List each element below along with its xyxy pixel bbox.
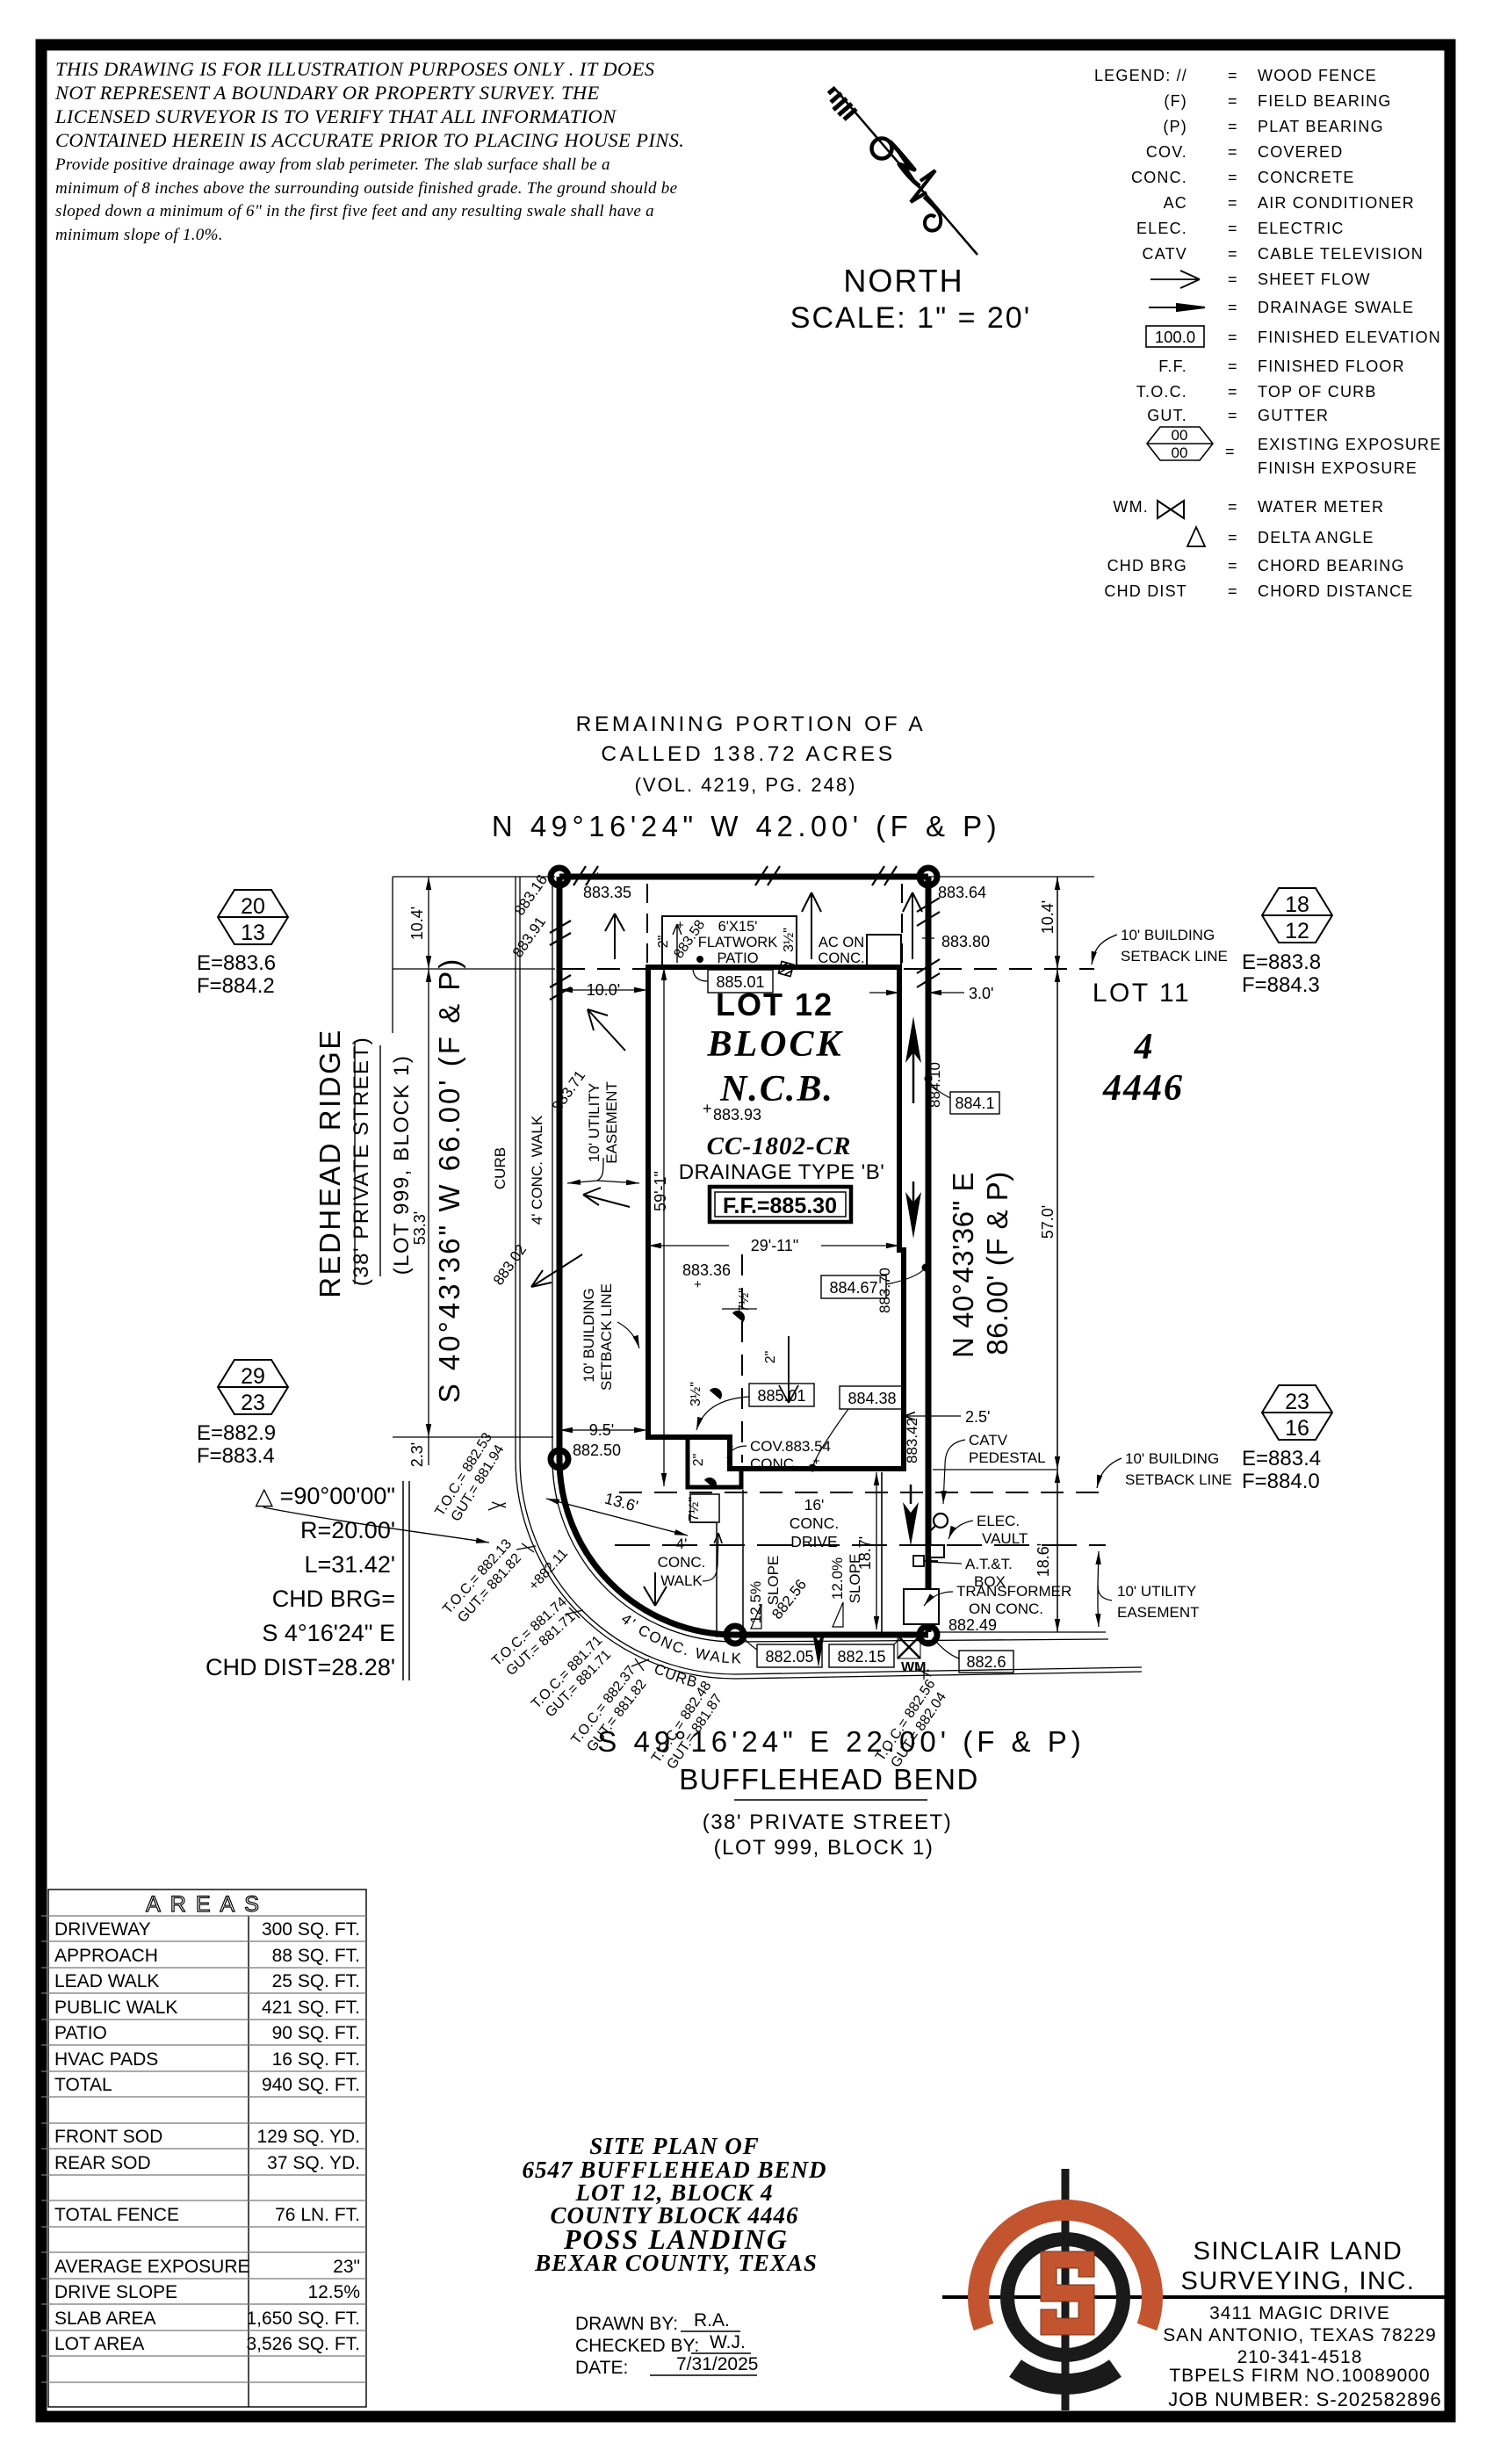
svg-text:DELTA ANGLE: DELTA ANGLE bbox=[1258, 529, 1374, 546]
svg-text:sloped down a minimum of 6" in: sloped down a minimum of 6" in the first… bbox=[55, 202, 654, 220]
svg-text:(38' PRIVATE STREET): (38' PRIVATE STREET) bbox=[350, 1037, 373, 1286]
svg-text:DRIVE: DRIVE bbox=[790, 1533, 837, 1550]
svg-text:(LOT 999, BLOCK 1): (LOT 999, BLOCK 1) bbox=[714, 1836, 934, 1860]
svg-text:E=883.4: E=883.4 bbox=[1242, 1447, 1321, 1470]
svg-text:+882.11: +882.11 bbox=[526, 1546, 571, 1593]
svg-text:COV.: COV. bbox=[1146, 143, 1187, 161]
svg-text:ELEC.: ELEC. bbox=[1136, 220, 1187, 237]
svg-text:+: + bbox=[594, 869, 602, 884]
svg-text:△ =90°00'00": △ =90°00'00" bbox=[255, 1483, 395, 1509]
svg-text:=: = bbox=[1228, 194, 1238, 212]
svg-text:883.35: 883.35 bbox=[583, 884, 631, 901]
svg-text:+: + bbox=[694, 1277, 702, 1292]
svg-text:882.05: 882.05 bbox=[765, 1648, 813, 1666]
svg-text:CHD BRG: CHD BRG bbox=[1107, 557, 1187, 574]
svg-text:DRIVEWAY: DRIVEWAY bbox=[54, 1919, 151, 1940]
svg-text:90 SQ. FT.: 90 SQ. FT. bbox=[272, 2023, 360, 2043]
svg-text:minimum slope of 1.0%.: minimum slope of 1.0%. bbox=[55, 226, 223, 244]
svg-text:SLAB AREA: SLAB AREA bbox=[54, 2309, 156, 2329]
svg-text:23": 23" bbox=[333, 2257, 360, 2277]
svg-text:883.71: 883.71 bbox=[549, 1067, 588, 1114]
svg-text:S 49°16'24" E 22.00' (F &: S 49°16'24" E 22.00' (F & P) bbox=[597, 1725, 1085, 1758]
svg-text:FINISH EXPOSURE: FINISH EXPOSURE bbox=[1258, 459, 1417, 477]
svg-text:2": 2" bbox=[691, 1454, 706, 1467]
svg-text:WALK: WALK bbox=[660, 1572, 703, 1589]
svg-text:210-341-4518: 210-341-4518 bbox=[1237, 2347, 1363, 2367]
svg-text:882.15: 882.15 bbox=[837, 1648, 885, 1666]
svg-text:NORTH: NORTH bbox=[843, 263, 963, 299]
svg-text:57.0': 57.0' bbox=[1039, 1205, 1057, 1239]
svg-text:TBPELS FIRM NO.10089000: TBPELS FIRM NO.10089000 bbox=[1169, 2366, 1430, 2386]
svg-text:FINISHED ELEVATION: FINISHED ELEVATION bbox=[1258, 329, 1441, 346]
svg-text:884.38: 884.38 bbox=[847, 1390, 896, 1407]
svg-text:SETBACK LINE: SETBACK LINE bbox=[1121, 948, 1228, 965]
svg-text:EASEMENT: EASEMENT bbox=[1117, 1604, 1200, 1621]
svg-text:10' BUILDING: 10' BUILDING bbox=[581, 1288, 597, 1382]
svg-text:NOT REPRESENT A BOUNDARY OR PR: NOT REPRESENT A BOUNDARY OR PROPERTY SUR… bbox=[54, 82, 600, 104]
svg-text:WOOD FENCE: WOOD FENCE bbox=[1258, 67, 1377, 84]
svg-text:00: 00 bbox=[1172, 427, 1188, 444]
svg-text:SLOPE: SLOPE bbox=[847, 1554, 863, 1604]
svg-text:AVERAGE EXPOSURE: AVERAGE EXPOSURE bbox=[54, 2257, 250, 2277]
svg-text:DATE:: DATE: bbox=[575, 2358, 628, 2378]
svg-text:R.A.: R.A. bbox=[694, 2310, 730, 2330]
svg-text:CABLE TELEVISION: CABLE TELEVISION bbox=[1258, 245, 1424, 263]
svg-text:12.0%: 12.0% bbox=[829, 1557, 846, 1600]
svg-text:882.50: 882.50 bbox=[573, 1442, 621, 1459]
svg-text:F.F.: F.F. bbox=[1158, 358, 1187, 375]
svg-text:23: 23 bbox=[241, 1391, 265, 1415]
svg-text:SITE PLAN OF: SITE PLAN OF bbox=[589, 2133, 760, 2159]
svg-text:F=883.4: F=883.4 bbox=[197, 1444, 275, 1468]
svg-text:+: + bbox=[703, 1100, 712, 1117]
svg-text:PATIO: PATIO bbox=[717, 950, 758, 966]
svg-text:CALLED 138.72 ACRES: CALLED 138.72 ACRES bbox=[601, 742, 895, 766]
svg-text:53.3': 53.3' bbox=[411, 1211, 429, 1245]
svg-text:N.C.B.: N.C.B. bbox=[719, 1069, 834, 1109]
svg-text:A.T.&T.: A.T.&T. bbox=[965, 1556, 1013, 1572]
svg-text:=: = bbox=[1228, 143, 1238, 161]
svg-text:DRIVE SLOPE: DRIVE SLOPE bbox=[54, 2282, 177, 2302]
svg-text:300 SQ. FT.: 300 SQ. FT. bbox=[262, 1919, 360, 1940]
svg-text:=: = bbox=[1228, 299, 1238, 316]
svg-text:23: 23 bbox=[1285, 1390, 1309, 1414]
svg-text:REMAINING PORTION OF A: REMAINING PORTION OF A bbox=[576, 712, 927, 736]
svg-text:CHORD DISTANCE: CHORD DISTANCE bbox=[1258, 582, 1413, 600]
svg-text:883.42: 883.42 bbox=[904, 1418, 920, 1463]
svg-text:LOT 11: LOT 11 bbox=[1093, 979, 1191, 1008]
svg-text:GUTTER: GUTTER bbox=[1258, 407, 1329, 424]
svg-text:(38' PRIVATE STREET): (38' PRIVATE STREET) bbox=[703, 1810, 952, 1834]
svg-text:DRAINAGE SWALE: DRAINAGE SWALE bbox=[1258, 299, 1414, 316]
svg-text:S 40°43'36" W 66.00' (F &: S 40°43'36" W 66.00' (F & P) bbox=[433, 957, 465, 1404]
svg-text:=: = bbox=[1228, 383, 1238, 401]
svg-text:CC-1802-CR: CC-1802-CR bbox=[707, 1132, 852, 1160]
svg-text:(P): (P) bbox=[1163, 118, 1187, 135]
svg-text:883.36: 883.36 bbox=[682, 1261, 731, 1279]
svg-text:883.93: 883.93 bbox=[713, 1106, 761, 1124]
svg-text:4: 4 bbox=[1134, 1027, 1153, 1067]
svg-text:EASEMENT: EASEMENT bbox=[603, 1081, 620, 1164]
svg-text:=: = bbox=[1228, 529, 1238, 546]
svg-text:THIS DRAWING IS FOR ILLUSTRATI: THIS DRAWING IS FOR ILLUSTRATION PURPOSE… bbox=[55, 58, 654, 80]
svg-text:884.10: 884.10 bbox=[927, 1062, 943, 1108]
svg-text:L=31.42': L=31.42' bbox=[304, 1551, 395, 1578]
svg-text:LEGEND: //: LEGEND: // bbox=[1094, 67, 1187, 84]
svg-text:10' BUILDING: 10' BUILDING bbox=[1125, 1450, 1219, 1467]
svg-text:F.F.=885.30: F.F.=885.30 bbox=[723, 1194, 837, 1218]
svg-text:940 SQ. FT.: 940 SQ. FT. bbox=[262, 2075, 360, 2095]
svg-text:16': 16' bbox=[804, 1496, 825, 1514]
svg-text:F=884.0: F=884.0 bbox=[1242, 1470, 1320, 1493]
svg-text:20: 20 bbox=[241, 894, 265, 919]
svg-text:7/31/2025: 7/31/2025 bbox=[676, 2354, 758, 2374]
svg-text:25 SQ. FT.: 25 SQ. FT. bbox=[272, 1971, 360, 1991]
svg-text:88 SQ. FT.: 88 SQ. FT. bbox=[272, 1946, 360, 1966]
svg-text:AREAS: AREAS bbox=[146, 1892, 269, 1917]
svg-text:Provide positive drainage away: Provide positive drainage away from slab… bbox=[54, 155, 610, 174]
svg-text:3.0': 3.0' bbox=[969, 985, 993, 1002]
svg-text:884.67: 884.67 bbox=[829, 1279, 877, 1297]
svg-text:CHD DIST: CHD DIST bbox=[1104, 582, 1187, 600]
svg-text:CONC.: CONC. bbox=[818, 950, 864, 966]
svg-text:SHEET FLOW: SHEET FLOW bbox=[1258, 271, 1371, 288]
svg-text:TOTAL: TOTAL bbox=[54, 2075, 112, 2095]
svg-text:TRANSFORMER: TRANSFORMER bbox=[956, 1583, 1071, 1600]
svg-text:12: 12 bbox=[1285, 919, 1309, 943]
svg-text:TOTAL FENCE: TOTAL FENCE bbox=[54, 2205, 179, 2225]
svg-text:E=882.9: E=882.9 bbox=[197, 1421, 276, 1445]
svg-text:=: = bbox=[1228, 271, 1238, 288]
svg-text:R=20.00': R=20.00' bbox=[300, 1517, 395, 1543]
svg-text:N 40°43'36" E: N 40°43'36" E bbox=[947, 1172, 979, 1358]
svg-text:=: = bbox=[1228, 169, 1238, 186]
svg-text:DRAWN BY:: DRAWN BY: bbox=[575, 2314, 678, 2334]
svg-text:(VOL. 4219, PG. 248): (VOL. 4219, PG. 248) bbox=[635, 774, 857, 796]
svg-text:CONC.: CONC. bbox=[750, 1456, 798, 1472]
svg-text:(F): (F) bbox=[1164, 92, 1187, 110]
svg-text:FLATWORK: FLATWORK bbox=[698, 935, 777, 950]
svg-text:CONC.: CONC. bbox=[790, 1514, 839, 1532]
svg-text:1,650 SQ. FT.: 1,650 SQ. FT. bbox=[246, 2309, 360, 2329]
svg-text:DRAINAGE TYPE 'B': DRAINAGE TYPE 'B' bbox=[679, 1160, 885, 1184]
svg-text:TOP OF CURB: TOP OF CURB bbox=[1258, 383, 1377, 401]
svg-text:=: = bbox=[1228, 358, 1238, 375]
svg-text:4' CONC. WALK: 4' CONC. WALK bbox=[529, 1115, 545, 1225]
svg-text:59'-1": 59'-1" bbox=[652, 1171, 669, 1211]
svg-text:APPROACH: APPROACH bbox=[54, 1946, 158, 1966]
svg-text:PLAT BEARING: PLAT BEARING bbox=[1258, 118, 1384, 135]
svg-text:WATER METER: WATER METER bbox=[1258, 498, 1384, 516]
svg-text:SETBACK LINE: SETBACK LINE bbox=[598, 1283, 615, 1391]
svg-text:CHECKED BY:: CHECKED BY: bbox=[575, 2336, 699, 2356]
svg-text:=: = bbox=[1228, 329, 1238, 346]
svg-text:883.16: 883.16 bbox=[511, 871, 551, 918]
svg-text:PEDESTAL: PEDESTAL bbox=[969, 1449, 1046, 1466]
svg-text:10' UTILITY: 10' UTILITY bbox=[1117, 1583, 1196, 1600]
svg-text:CHORD BEARING: CHORD BEARING bbox=[1258, 557, 1405, 574]
svg-text:SINCLAIR LAND: SINCLAIR LAND bbox=[1194, 2237, 1403, 2265]
svg-text:3½": 3½" bbox=[689, 1382, 703, 1406]
svg-text:W.J.: W.J. bbox=[710, 2332, 746, 2352]
svg-text:VAULT: VAULT bbox=[982, 1530, 1028, 1547]
svg-text:EXISTING EXPOSURE: EXISTING EXPOSURE bbox=[1258, 436, 1441, 453]
svg-text:CATV: CATV bbox=[969, 1432, 1008, 1449]
svg-text:CONTAINED HEREIN IS ACCURATE P: CONTAINED HEREIN IS ACCURATE PRIOR TO PL… bbox=[55, 129, 684, 151]
svg-text:S 4°16'24" E: S 4°16'24" E bbox=[262, 1620, 395, 1646]
svg-text:CURB: CURB bbox=[492, 1147, 508, 1189]
svg-text:SETBACK LINE: SETBACK LINE bbox=[1125, 1471, 1232, 1488]
svg-text:29: 29 bbox=[241, 1364, 265, 1389]
svg-text:3411 MAGIC DRIVE: 3411 MAGIC DRIVE bbox=[1209, 2303, 1390, 2323]
svg-text:=: = bbox=[1228, 498, 1238, 516]
svg-text:AC ON: AC ON bbox=[819, 935, 864, 950]
svg-text:3½": 3½" bbox=[782, 928, 797, 952]
svg-text:16 SQ. FT.: 16 SQ. FT. bbox=[272, 2049, 360, 2070]
svg-text:minimum of 8 inches above the: minimum of 8 inches above the surroundin… bbox=[55, 179, 677, 198]
svg-text:E=883.8: E=883.8 bbox=[1242, 950, 1321, 974]
svg-text:LEAD WALK: LEAD WALK bbox=[54, 1971, 159, 1991]
svg-text:+: + bbox=[812, 1454, 820, 1469]
svg-text:LICENSED SURVEYOR IS TO VERIFY: LICENSED SURVEYOR IS TO VERIFY THAT ALL … bbox=[54, 105, 617, 127]
svg-text:18: 18 bbox=[1285, 892, 1309, 917]
svg-text:=: = bbox=[1228, 245, 1238, 263]
svg-text:SAN ANTONIO, TEXAS 78229: SAN ANTONIO, TEXAS 78229 bbox=[1163, 2325, 1437, 2345]
svg-text:JOB NUMBER: S-202582896: JOB NUMBER: S-202582896 bbox=[1168, 2388, 1442, 2410]
svg-text:F=884.3: F=884.3 bbox=[1242, 973, 1320, 997]
svg-text:12.5%: 12.5% bbox=[307, 2282, 360, 2302]
svg-text:16: 16 bbox=[1285, 1416, 1309, 1441]
svg-text:PUBLIC WALK: PUBLIC WALK bbox=[54, 1998, 177, 2018]
svg-text:=: = bbox=[1228, 407, 1238, 424]
svg-text:882.49: 882.49 bbox=[948, 1616, 997, 1634]
svg-text:86.00' (F & P): 86.00' (F & P) bbox=[981, 1171, 1013, 1355]
svg-text:=: = bbox=[1228, 220, 1238, 237]
svg-text:FRONT SOD: FRONT SOD bbox=[54, 2127, 162, 2147]
svg-text:2.5': 2.5' bbox=[965, 1408, 990, 1426]
svg-text:CURB: CURB bbox=[652, 1660, 700, 1691]
svg-text:883.70: 883.70 bbox=[876, 1268, 893, 1313]
svg-text:2": 2" bbox=[656, 936, 671, 949]
svg-text:ON CONC.: ON CONC. bbox=[969, 1601, 1043, 1617]
svg-text:BUFFLEHEAD BEND: BUFFLEHEAD BEND bbox=[679, 1763, 979, 1796]
svg-text:=: = bbox=[1228, 557, 1238, 574]
svg-text:=: = bbox=[1228, 92, 1238, 110]
svg-text:BEXAR COUNTY, TEXAS: BEXAR COUNTY, TEXAS bbox=[534, 2250, 818, 2276]
svg-text:BLOCK: BLOCK bbox=[706, 1024, 843, 1065]
svg-text:4446: 4446 bbox=[1102, 1068, 1184, 1109]
svg-text:CONC.: CONC. bbox=[1131, 169, 1187, 186]
svg-text:COV.883.54: COV.883.54 bbox=[750, 1438, 831, 1455]
svg-text:REAR SOD: REAR SOD bbox=[54, 2153, 151, 2173]
svg-text:HVAC PADS: HVAC PADS bbox=[54, 2049, 158, 2070]
svg-text:10.4': 10.4' bbox=[408, 907, 426, 940]
svg-text:SURVEYING, INC.: SURVEYING, INC. bbox=[1181, 2267, 1416, 2295]
svg-text:3,526 SQ. FT.: 3,526 SQ. FT. bbox=[246, 2334, 360, 2354]
svg-text:129 SQ. YD.: 129 SQ. YD. bbox=[256, 2127, 360, 2147]
svg-text:=: = bbox=[1228, 118, 1238, 135]
svg-text:GUT.: GUT. bbox=[1147, 407, 1187, 424]
svg-text:10' UTILITY: 10' UTILITY bbox=[586, 1083, 602, 1162]
svg-text:=: = bbox=[1228, 67, 1238, 84]
svg-text:LOT 12: LOT 12 bbox=[716, 986, 833, 1022]
svg-text:76 LN. FT.: 76 LN. FT. bbox=[275, 2205, 360, 2225]
svg-text:37 SQ. YD.: 37 SQ. YD. bbox=[267, 2153, 360, 2173]
svg-text:FINISHED FLOOR: FINISHED FLOOR bbox=[1258, 358, 1405, 375]
svg-text:CATV: CATV bbox=[1143, 245, 1187, 263]
svg-text:10.4': 10.4' bbox=[1039, 900, 1057, 934]
svg-text:885.01: 885.01 bbox=[716, 973, 764, 991]
svg-text:ELECTRIC: ELECTRIC bbox=[1258, 220, 1345, 237]
svg-text:COVERED: COVERED bbox=[1258, 143, 1343, 161]
svg-text:882.6: 882.6 bbox=[966, 1653, 1006, 1671]
svg-text:AC: AC bbox=[1164, 194, 1187, 212]
svg-text:10.0': 10.0' bbox=[587, 981, 620, 999]
svg-text:18.6': 18.6' bbox=[1035, 1543, 1052, 1577]
svg-text:=: = bbox=[1225, 443, 1236, 460]
svg-text:ELEC.: ELEC. bbox=[977, 1513, 1020, 1529]
svg-text:E=883.6: E=883.6 bbox=[197, 951, 276, 975]
svg-text:421 SQ. FT.: 421 SQ. FT. bbox=[262, 1998, 360, 2018]
svg-text:CHD DIST=28.28': CHD DIST=28.28' bbox=[206, 1654, 395, 1680]
svg-text:883.80: 883.80 bbox=[941, 933, 990, 950]
svg-text:2": 2" bbox=[763, 1351, 778, 1364]
svg-text:10' BUILDING: 10' BUILDING bbox=[1121, 927, 1215, 943]
svg-text:T.O.C.: T.O.C. bbox=[1136, 383, 1187, 401]
svg-text:13: 13 bbox=[241, 921, 265, 945]
svg-text:883.64: 883.64 bbox=[938, 884, 986, 901]
svg-text:FIELD BEARING: FIELD BEARING bbox=[1258, 92, 1392, 110]
svg-text:29'-11": 29'-11" bbox=[751, 1237, 799, 1254]
svg-text:PATIO: PATIO bbox=[54, 2023, 107, 2043]
svg-text:F=884.2: F=884.2 bbox=[197, 974, 275, 998]
svg-text:4': 4' bbox=[676, 1535, 688, 1552]
svg-text:=: = bbox=[1228, 582, 1238, 600]
svg-text:SCALE: 1" = 20': SCALE: 1" = 20' bbox=[790, 301, 1031, 335]
svg-text:7½": 7½" bbox=[687, 1497, 702, 1521]
svg-text:(LOT 999, BLOCK 1): (LOT 999, BLOCK 1) bbox=[390, 1055, 414, 1275]
svg-text:N 49°16'24" W 42.00' (F &: N 49°16'24" W 42.00' (F & P) bbox=[492, 810, 1001, 842]
svg-text:884.1: 884.1 bbox=[955, 1095, 994, 1112]
svg-text:AIR CONDITIONER: AIR CONDITIONER bbox=[1258, 194, 1415, 212]
svg-text:2.3': 2.3' bbox=[408, 1442, 426, 1467]
svg-text:CHD BRG=: CHD BRG= bbox=[272, 1586, 395, 1612]
svg-text:LOT AREA: LOT AREA bbox=[54, 2334, 144, 2354]
svg-text:6'X15': 6'X15' bbox=[718, 919, 758, 935]
svg-text:WM.: WM. bbox=[1113, 498, 1149, 516]
svg-text:REDHEAD RIDGE: REDHEAD RIDGE bbox=[314, 1028, 346, 1298]
svg-text:100.0: 100.0 bbox=[1155, 328, 1195, 346]
svg-text:CONCRETE: CONCRETE bbox=[1258, 169, 1355, 186]
svg-text:00: 00 bbox=[1172, 444, 1188, 461]
svg-text:883.02: 883.02 bbox=[490, 1241, 530, 1288]
svg-text:9.5': 9.5' bbox=[589, 1421, 614, 1439]
svg-text:CONC.: CONC. bbox=[658, 1554, 706, 1571]
